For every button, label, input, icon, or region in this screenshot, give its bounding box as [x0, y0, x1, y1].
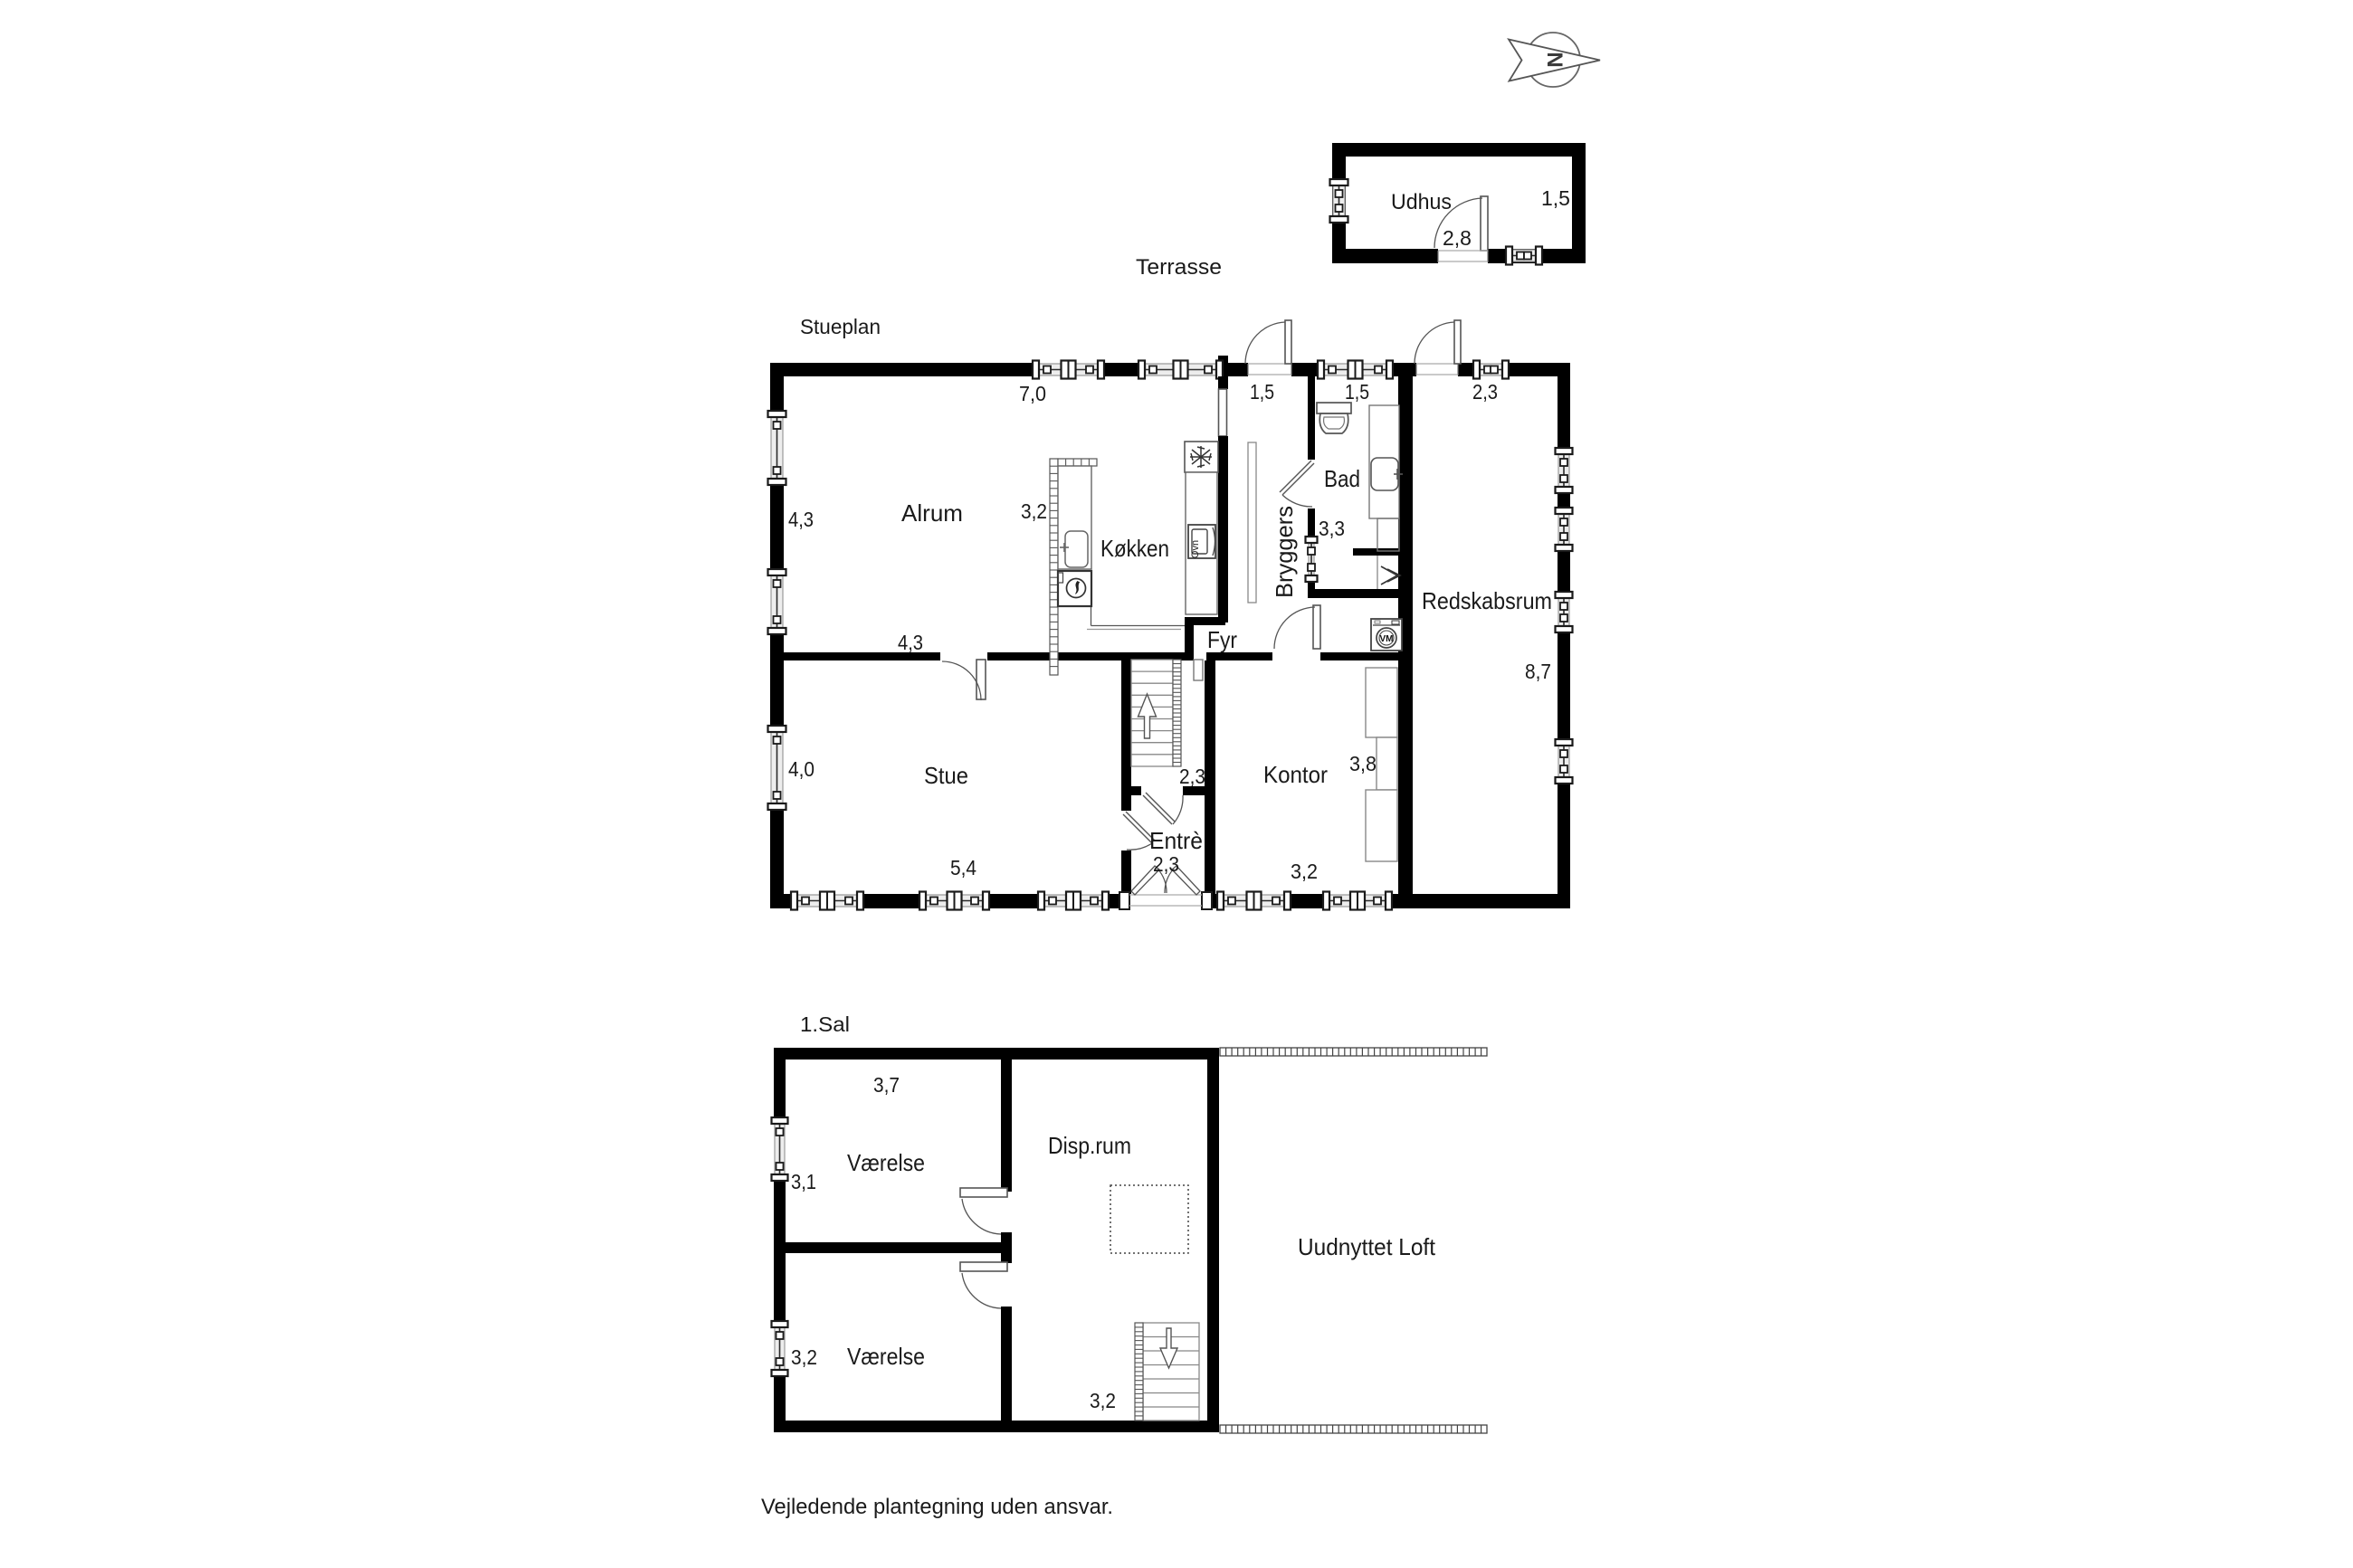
svg-text:Værelse: Værelse [847, 1149, 925, 1176]
svg-text:VM: VM [1380, 634, 1394, 644]
svg-text:Ovn: Ovn [1190, 540, 1201, 558]
svg-text:2,3: 2,3 [1179, 765, 1205, 788]
svg-text:3,2: 3,2 [1021, 499, 1047, 523]
svg-text:Stueplan: Stueplan [800, 315, 881, 338]
svg-text:Uudnyttet Loft: Uudnyttet Loft [1298, 1233, 1436, 1260]
svg-text:1.Sal: 1.Sal [800, 1012, 850, 1036]
svg-text:3,2: 3,2 [1090, 1389, 1116, 1412]
svg-text:Vejledende plantegning uden an: Vejledende plantegning uden ansvar. [761, 1495, 1113, 1519]
svg-text:2,3: 2,3 [1153, 852, 1179, 876]
svg-text:3,1: 3,1 [791, 1170, 816, 1193]
svg-text:Alrum: Alrum [901, 499, 963, 527]
svg-text:5,4: 5,4 [950, 856, 976, 879]
svg-text:Stue: Stue [924, 762, 968, 789]
svg-text:Bryggers: Bryggers [1271, 506, 1298, 598]
svg-text:Fyr: Fyr [1207, 626, 1237, 653]
svg-text:Redskabsrum: Redskabsrum [1422, 587, 1552, 614]
svg-text:N: N [1542, 52, 1567, 67]
svg-text:1,5: 1,5 [1250, 380, 1274, 404]
svg-text:2,3: 2,3 [1472, 380, 1498, 404]
svg-text:1,5: 1,5 [1345, 380, 1369, 404]
svg-text:7,0: 7,0 [1019, 382, 1046, 405]
svg-text:3,3: 3,3 [1319, 517, 1345, 540]
svg-text:Terrasse: Terrasse [1136, 255, 1222, 280]
svg-text:4,3: 4,3 [788, 508, 814, 531]
svg-text:4,0: 4,0 [788, 757, 814, 781]
svg-text:1,5: 1,5 [1541, 186, 1570, 210]
svg-text:Bad: Bad [1324, 465, 1360, 492]
svg-text:Udhus: Udhus [1391, 190, 1452, 214]
svg-text:3,8: 3,8 [1349, 752, 1377, 775]
svg-text:2,8: 2,8 [1443, 226, 1472, 250]
svg-text:Disp.rum: Disp.rum [1048, 1132, 1131, 1159]
svg-text:Værelse: Værelse [847, 1343, 925, 1370]
svg-text:3,2: 3,2 [1291, 860, 1318, 883]
svg-text:3,2: 3,2 [791, 1345, 817, 1369]
svg-text:4,3: 4,3 [898, 631, 923, 654]
svg-text:8,7: 8,7 [1525, 660, 1551, 683]
svg-text:3,7: 3,7 [873, 1073, 900, 1097]
svg-text:Køkken: Køkken [1100, 535, 1169, 562]
svg-text:Kontor: Kontor [1263, 761, 1328, 788]
svg-text:Entrè: Entrè [1149, 827, 1203, 854]
